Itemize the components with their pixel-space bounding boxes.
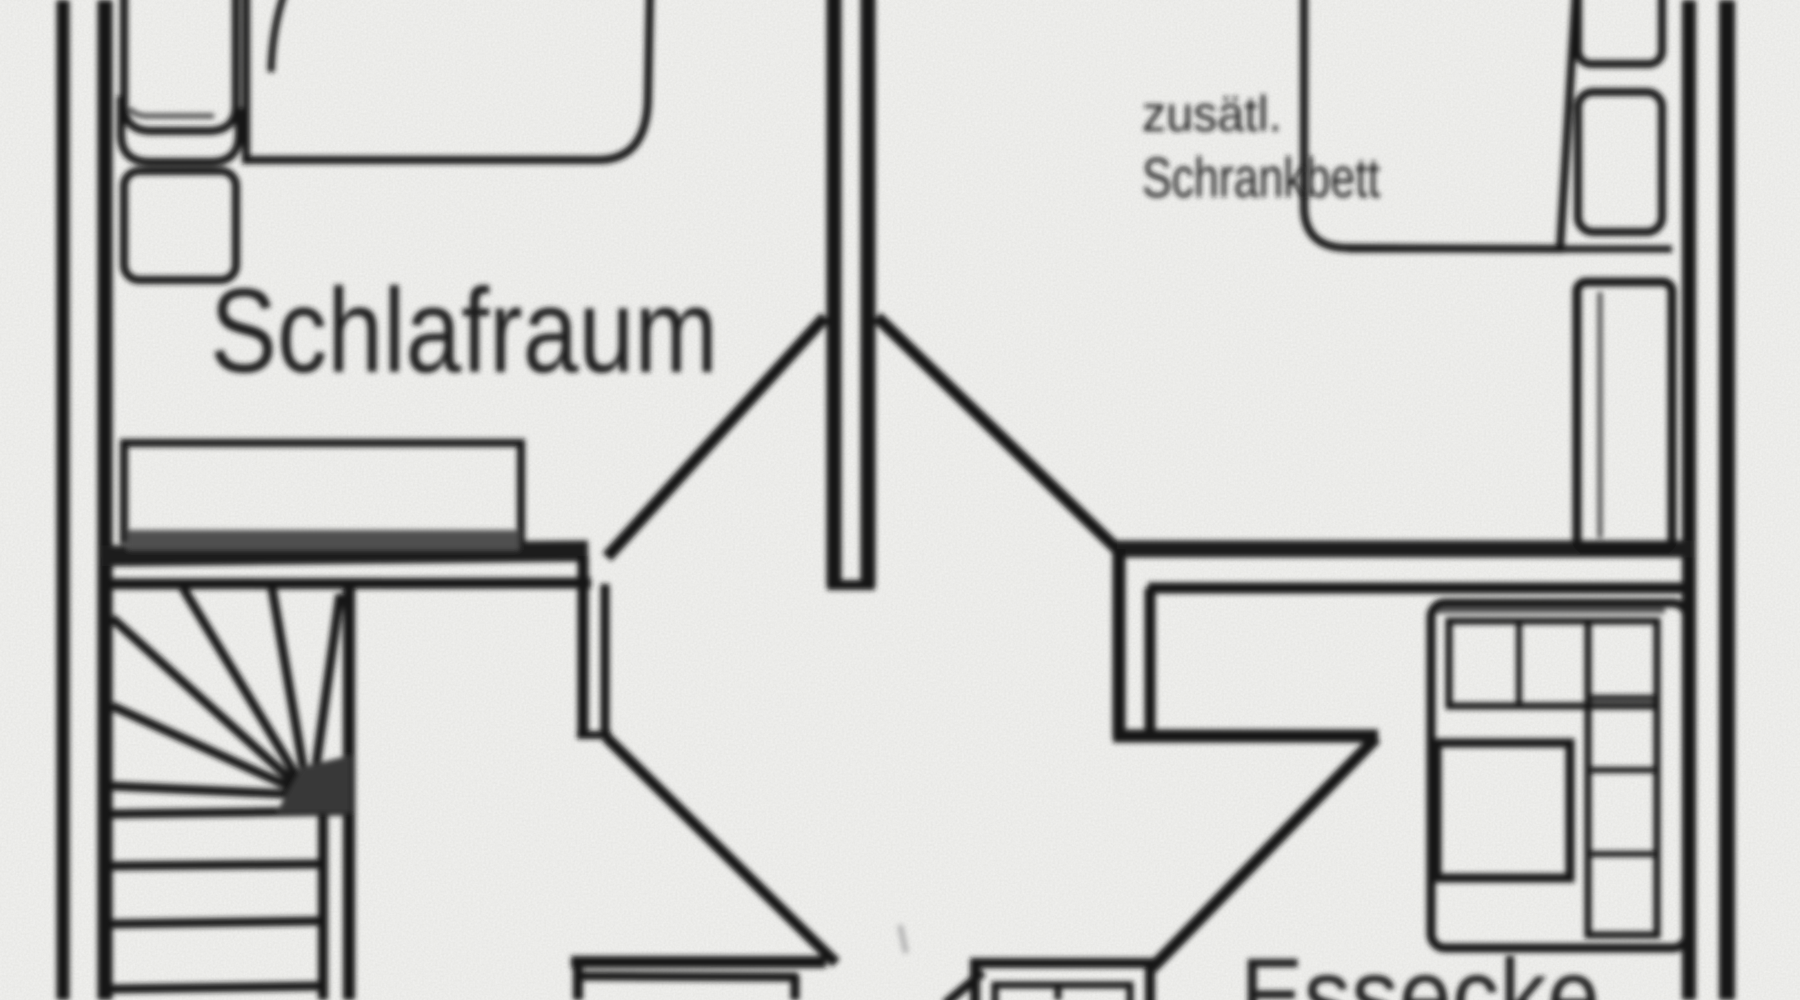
svg-text:Schrankbett: Schrankbett bbox=[1142, 146, 1380, 210]
svg-text:zusätl.: zusätl. bbox=[1142, 86, 1282, 142]
svg-text:Schlafraum: Schlafraum bbox=[210, 264, 718, 398]
svg-text:Essecke: Essecke bbox=[1240, 937, 1600, 1000]
